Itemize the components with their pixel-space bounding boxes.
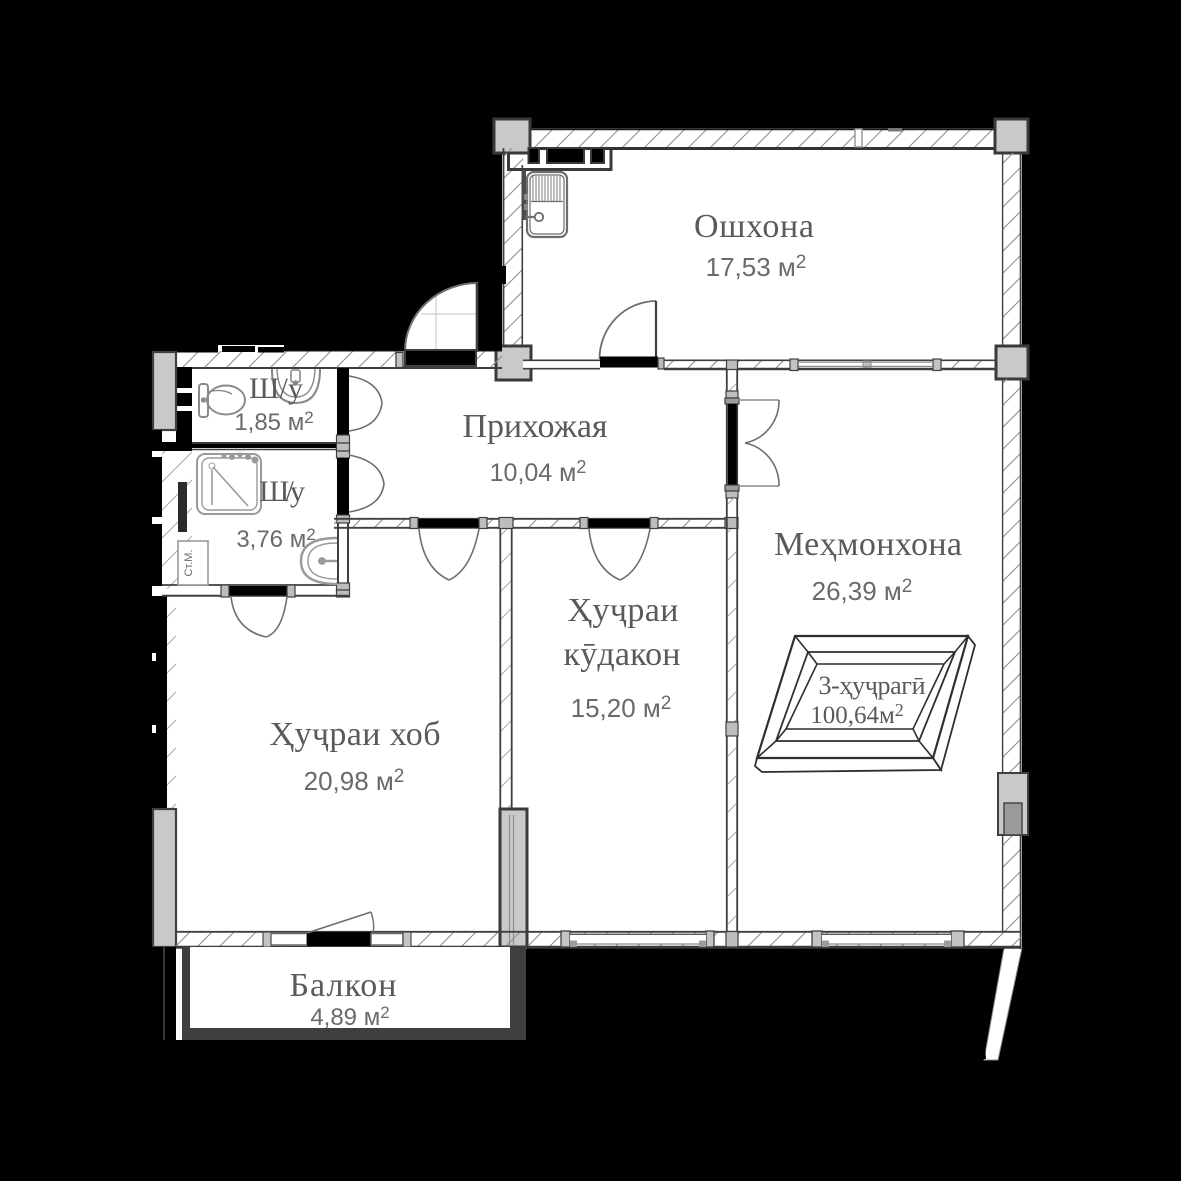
svg-text:Ст.М.: Ст.М.	[183, 549, 195, 576]
svg-text:26,39 м2: 26,39 м2	[812, 576, 913, 606]
svg-text:Балкон: Балкон	[290, 967, 397, 1004]
svg-text:100,64м2: 100,64м2	[810, 700, 904, 729]
svg-text:15,20 м2: 15,20 м2	[571, 693, 672, 723]
svg-text:4,89 м2: 4,89 м2	[310, 1003, 389, 1031]
svg-text:3-ҳуҷрагӣ: 3-ҳуҷрагӣ	[819, 671, 926, 700]
svg-text:Ш/у: Ш/у	[249, 372, 303, 405]
svg-text:10,04 м2: 10,04 м2	[490, 457, 587, 487]
svg-text:кӯдакон: кӯдакон	[564, 636, 681, 673]
svg-text:3,76 м2: 3,76 м2	[236, 525, 315, 553]
svg-text:1,85 м2: 1,85 м2	[234, 408, 313, 436]
svg-text:17,53 м2: 17,53 м2	[706, 252, 807, 282]
svg-text:Ш/у: Ш/у	[259, 475, 305, 508]
svg-text:Ҳуҷраи: Ҳуҷраи	[568, 592, 679, 629]
svg-text:20,98 м2: 20,98 м2	[304, 766, 405, 796]
svg-text:Ҳуҷраи хоб: Ҳуҷраи хоб	[270, 716, 441, 753]
svg-text:Меҳмонхона: Меҳмонхона	[774, 526, 962, 563]
svg-text:Прихожая: Прихожая	[463, 408, 608, 445]
svg-text:Ошхона: Ошхона	[694, 208, 814, 245]
